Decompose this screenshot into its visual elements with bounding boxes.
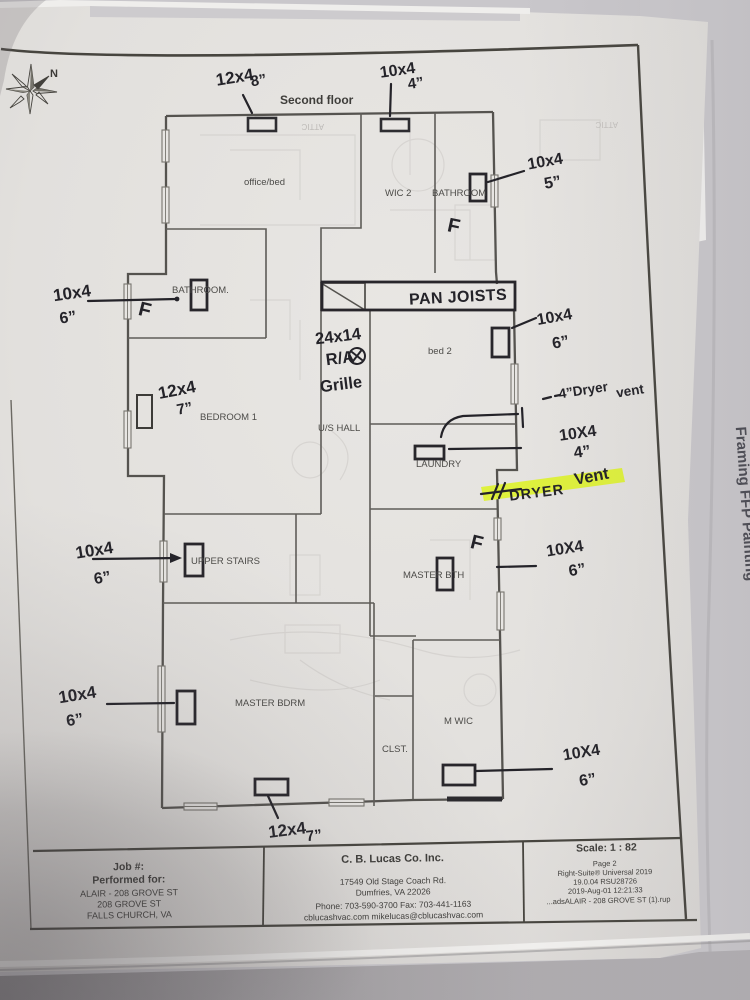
svg-text:Second floor: Second floor	[280, 93, 354, 107]
svg-text:U/S HALL: U/S HALL	[318, 423, 360, 434]
svg-text:BATHROOM.: BATHROOM.	[172, 285, 229, 296]
svg-text:8”: 8”	[249, 71, 267, 90]
svg-text:7”: 7”	[175, 399, 194, 419]
svg-text:6”: 6”	[58, 308, 77, 327]
svg-text:BEDROOM 1: BEDROOM 1	[200, 412, 257, 423]
svg-text:WIC 2: WIC 2	[385, 188, 411, 199]
svg-text:office/bed: office/bed	[244, 177, 285, 188]
svg-text:BATHROOM: BATHROOM	[432, 188, 486, 199]
svg-text:ATTIC: ATTIC	[301, 122, 324, 131]
svg-text:bed 2: bed 2	[428, 346, 452, 357]
svg-text:N: N	[50, 68, 58, 80]
svg-text:4”: 4”	[407, 74, 425, 93]
svg-text:LAUNDRY: LAUNDRY	[416, 459, 462, 470]
